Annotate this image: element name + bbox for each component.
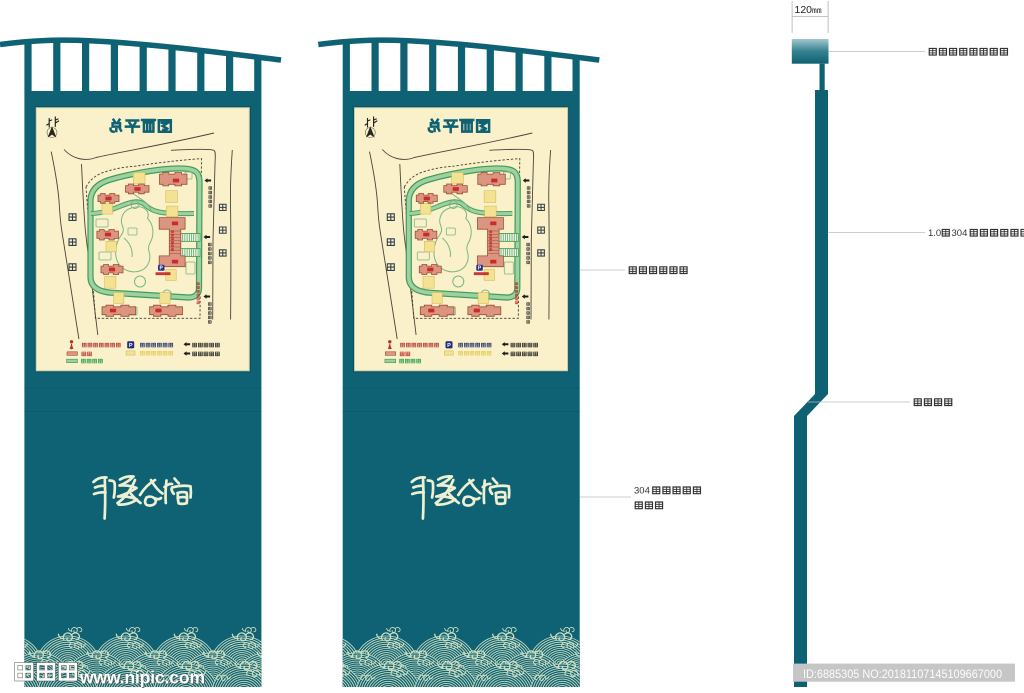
svg-text:304: 304	[952, 228, 968, 239]
svg-text:ID:6885305 NO:2018110714510966: ID:6885305 NO:20181107145109667000	[803, 669, 1002, 681]
svg-text:www.nipic.com: www.nipic.com	[79, 668, 205, 688]
svg-text:304: 304	[634, 485, 650, 496]
svg-text:1.0: 1.0	[928, 228, 941, 239]
